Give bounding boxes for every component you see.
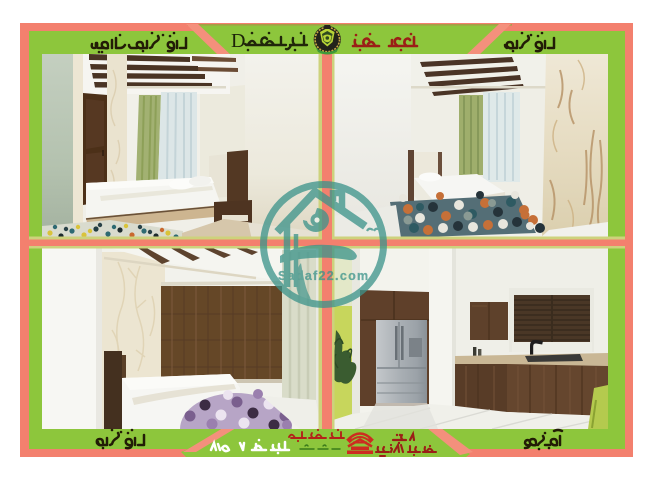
svg-text:D: D: [231, 30, 245, 52]
svg-text:Sadaf22.com: Sadaf22.com: [278, 269, 369, 283]
